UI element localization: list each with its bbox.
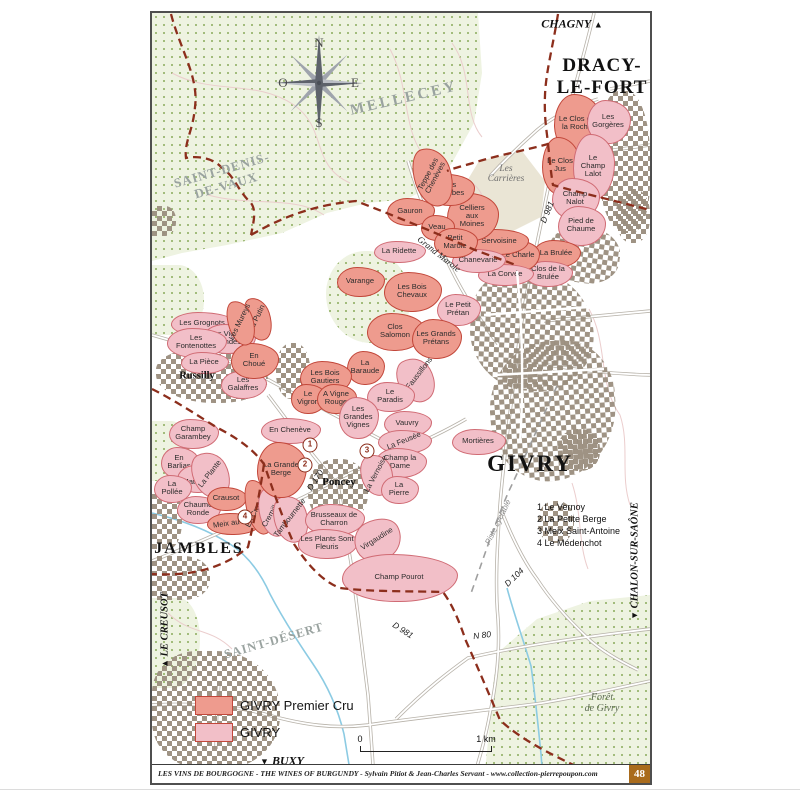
premier-cru-reference-list: 1 Le Vernoy2 La Petite Berge3 Meix Saint… — [537, 501, 620, 549]
region-label-saint-desert: SAINT-DÉSERT — [223, 620, 326, 663]
road-label-d-981: D 981 — [391, 620, 415, 641]
west-arrow-icon: ▲ — [160, 659, 170, 668]
town-label-dracy-le-fort: DRACY-LE-FORT — [557, 55, 648, 99]
chagny-label: CHAGNY — [541, 17, 591, 31]
legend-swatch-givry — [195, 723, 233, 742]
page-bottom-rule — [0, 789, 800, 790]
region-label-mellecey: MELLECEY — [349, 78, 460, 119]
region-label-foret-de-givry-line: de Givry — [585, 703, 620, 714]
town-label-russilly: Russilly — [179, 371, 215, 382]
town-label-dracy-le-fort-line: LE-FORT — [557, 77, 648, 99]
road-label-d-981: D 981 — [538, 200, 556, 225]
road-label-piste-cyclable: Piste cyclable — [483, 498, 513, 546]
map-page: Le Clos de la RocheLes GorgèresLe Clos J… — [0, 0, 800, 800]
east-arrow-icon: ▼ — [630, 611, 640, 620]
scale-bar — [360, 746, 492, 752]
credit-text: LES VINS DE BOURGOGNE - THE WINES OF BUR… — [158, 769, 598, 778]
legend-label-givry-premier-cru: GIVRY Premier Cru — [240, 698, 354, 713]
region-label-foret-de-givry: Forêtde Givry — [585, 692, 620, 714]
region-label-les-carrieres-line: Carrières — [488, 174, 525, 184]
legend-label-givry: GIVRY — [240, 725, 280, 740]
reference-item-2: 2 La Petite Berge — [537, 513, 620, 525]
town-label-poncey: Poncey — [322, 476, 356, 488]
chagny-edge-label: CHAGNY ▲ — [541, 17, 602, 32]
chalon-edge-label: ▼ CHALON-SUR-SAÔNE — [630, 502, 641, 620]
page-number-badge: 48 — [629, 765, 650, 783]
numbered-marker-3: 3 — [360, 444, 375, 459]
region-label-foret-de-givry-line: Forêt — [585, 692, 620, 703]
region-label-les-carrieres-line: Les — [488, 164, 525, 174]
numbered-marker-4: 4 — [238, 510, 253, 525]
scale-one-km-label: 1 km — [476, 734, 496, 744]
reference-item-4: 4 Le Médenchot — [537, 537, 620, 549]
legend-swatch-givry-premier-cru — [195, 696, 233, 715]
scale-zero-label: 0 — [357, 734, 362, 744]
region-label-saint-denis-de-vaux: SAINT-DENIS-DE-VAUX — [172, 149, 276, 207]
road-label-grand-marole: Grand Marole — [415, 234, 462, 274]
labels-layer: DRACY-LE-FORTGIVRYJAMBLESRussillyPonceyM… — [152, 13, 650, 783]
reference-item-3: 3 Meix Saint-Antoine — [537, 525, 620, 537]
footer-bar: LES VINS DE BOURGOGNE - THE WINES OF BUR… — [152, 764, 650, 783]
road-label-n-80: N 80 — [472, 629, 491, 641]
le-creusot-label: LE CREUSOT — [160, 592, 171, 656]
region-label-les-carrieres: LesCarrières — [488, 164, 525, 184]
reference-item-1: 1 Le Vernoy — [537, 501, 620, 513]
road-label-d-104: D 104 — [502, 566, 525, 589]
chalon-label: CHALON-SUR-SAÔNE — [630, 502, 641, 608]
le-creusot-edge-label: ▲ LE CREUSOT — [160, 592, 171, 668]
town-label-givry: GIVRY — [487, 451, 573, 477]
map-canvas: Le Clos de la RocheLes GorgèresLe Clos J… — [150, 11, 652, 785]
numbered-marker-1: 1 — [303, 438, 318, 453]
numbered-marker-2: 2 — [298, 458, 313, 473]
town-label-jambles: JAMBLES — [154, 540, 244, 558]
north-arrow-icon: ▲ — [594, 20, 603, 30]
town-label-dracy-le-fort-line: DRACY- — [557, 55, 648, 77]
